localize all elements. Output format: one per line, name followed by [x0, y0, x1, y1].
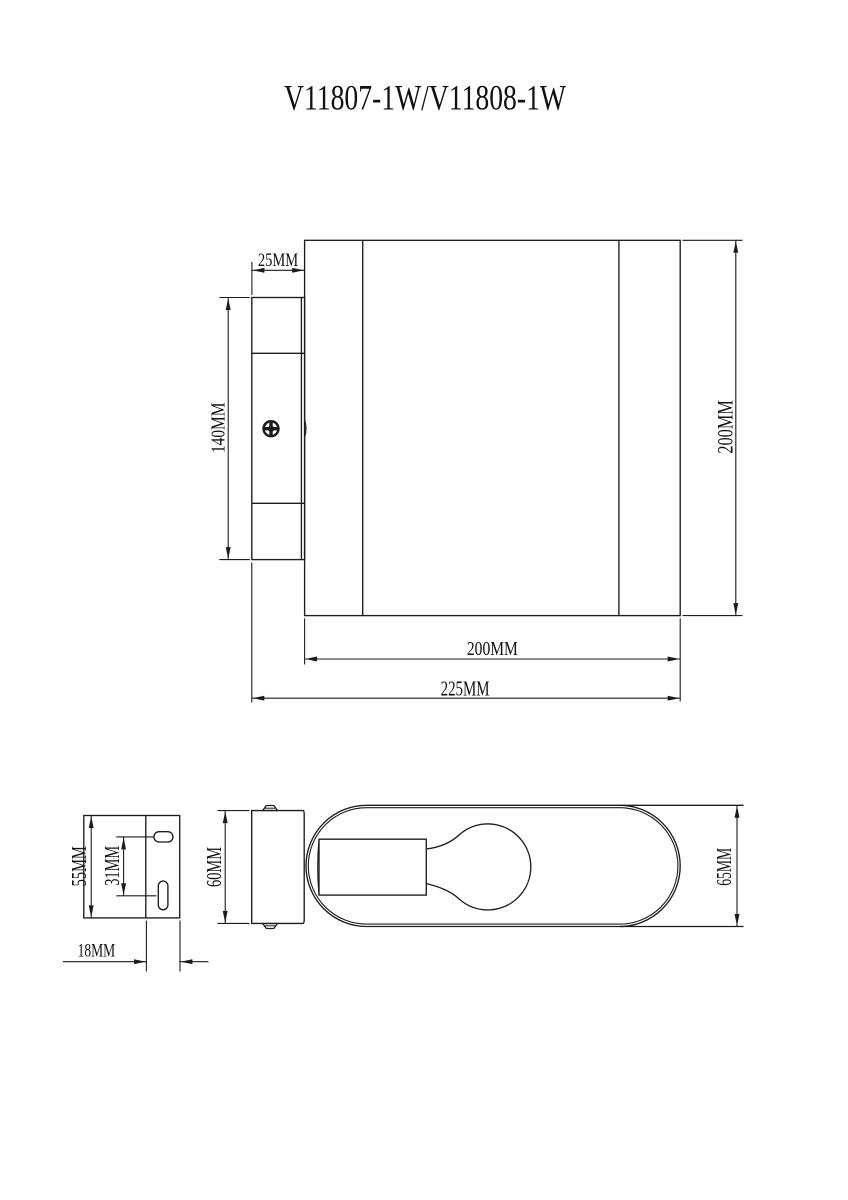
svg-text:60MM: 60MM: [202, 847, 226, 887]
svg-text:V11807-1W/V11808-1W: V11807-1W/V11808-1W: [284, 78, 566, 118]
svg-text:25MM: 25MM: [258, 251, 298, 271]
svg-text:55MM: 55MM: [67, 846, 91, 886]
svg-text:65MM: 65MM: [712, 848, 736, 886]
svg-text:18MM: 18MM: [78, 941, 116, 962]
svg-text:200MM: 200MM: [467, 638, 518, 660]
svg-text:31MM: 31MM: [100, 846, 124, 886]
svg-text:200MM: 200MM: [712, 400, 737, 454]
svg-text:140MM: 140MM: [208, 403, 230, 454]
svg-text:225MM: 225MM: [441, 677, 490, 701]
